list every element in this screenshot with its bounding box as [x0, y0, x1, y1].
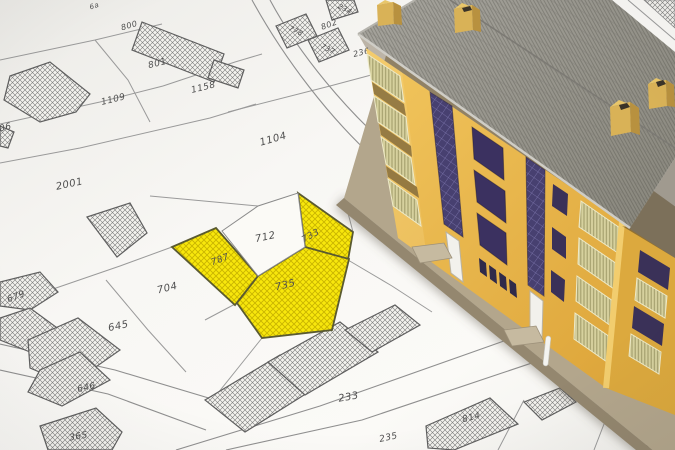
photo-canvas: 6a80080280111581109061104200123477873723…	[0, 0, 675, 450]
photo-vignette	[0, 0, 675, 450]
cadastral-photo: 6a80080280111581109061104200123477873723…	[0, 0, 675, 450]
